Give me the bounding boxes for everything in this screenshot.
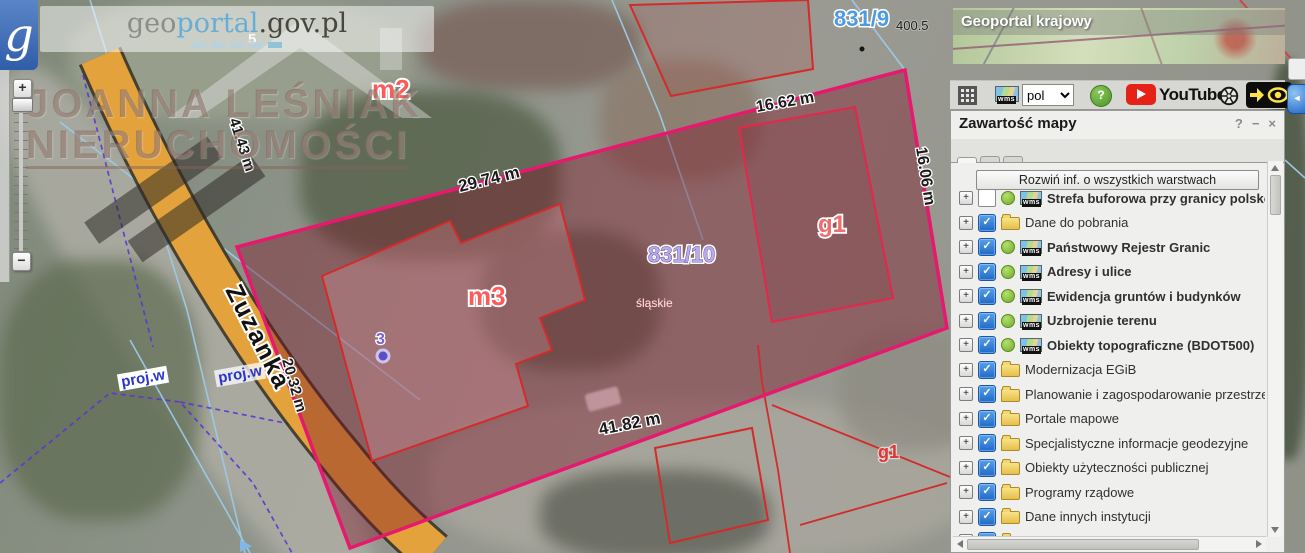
layer-checkbox[interactable] [978, 361, 996, 379]
menu-item[interactable] [249, 42, 263, 48]
site-header: geoportal.gov.pl [40, 6, 434, 52]
folder-icon [1001, 217, 1020, 230]
building-m2-outline [630, 0, 813, 96]
tab[interactable] [980, 156, 1000, 162]
building-label-g1-top: g1 [818, 211, 846, 238]
wms-icon: wms [1020, 314, 1042, 328]
layer-row[interactable]: + wms Uzbrojenie terenu [955, 309, 1265, 334]
layer-row[interactable]: + wms Dane do pobrania [955, 211, 1265, 236]
expand-layer-icon[interactable]: + [959, 314, 973, 328]
layer-label: Planowanie i zagospodarowanie przestrzen… [1025, 387, 1265, 402]
layer-checkbox[interactable] [978, 410, 996, 428]
map-contents-panel: Zawartość mapy ? − × Rozwiń inf. o wszys… [950, 110, 1285, 553]
wms-status-dot [1001, 191, 1015, 205]
expand-layer-icon[interactable]: + [959, 461, 973, 475]
layer-row[interactable]: + wms Ewidencja gruntów i budynków [955, 284, 1265, 309]
expand-layer-icon[interactable]: + [959, 289, 973, 303]
panel-help-button[interactable]: ? [1235, 116, 1243, 131]
grid-icon[interactable] [958, 86, 977, 105]
wms-status-dot [1001, 265, 1015, 279]
edge-button[interactable] [1288, 58, 1305, 80]
horizontal-scroll-thumb[interactable] [967, 539, 1199, 550]
layer-label: Państwowy Rejestr Granic [1047, 240, 1210, 255]
layer-checkbox[interactable] [978, 434, 996, 452]
layer-checkbox[interactable] [978, 385, 996, 403]
layer-label: Modernizacja EGiB [1025, 362, 1136, 377]
menu-item[interactable] [192, 42, 206, 48]
layer-list: + wms Strefa buforowa przy granicy polsk… [955, 186, 1265, 538]
menu-item[interactable] [211, 42, 225, 48]
panel-tabs [951, 139, 1284, 163]
scroll-right-icon[interactable] [1256, 540, 1262, 548]
wms-status-dot [1001, 314, 1015, 328]
layer-label: Obiekty użyteczności publicznej [1025, 460, 1209, 475]
layer-checkbox[interactable] [978, 189, 996, 207]
zoom-slider-handle[interactable] [12, 98, 33, 112]
menu-item[interactable] [230, 42, 244, 48]
expand-layer-icon[interactable]: + [959, 338, 973, 352]
layer-row[interactable]: + wms Adresy i ulice [955, 260, 1265, 285]
building-label-m2: m2 [372, 74, 410, 104]
expand-layer-icon[interactable]: + [959, 436, 973, 450]
layer-label: Strefa buforowa przy granicy polsko-biał… [1047, 191, 1265, 206]
layer-row[interactable]: + wms Obiekty użyteczności publicznej [955, 456, 1265, 481]
cadastral-line [1285, 160, 1305, 178]
zoom-in-button[interactable]: + [13, 79, 32, 98]
expand-layer-icon[interactable]: + [959, 412, 973, 426]
wms-icon: wms [1020, 289, 1042, 303]
zoom-slider-rail[interactable] [14, 113, 28, 251]
expand-layer-icon[interactable]: + [959, 363, 973, 377]
layer-label: Ewidencja gruntów i budynków [1047, 289, 1241, 304]
wms-status-dot [1001, 289, 1015, 303]
visibility-toggle-icon[interactable] [1246, 82, 1292, 108]
layer-label: Dane do pobrania [1025, 215, 1128, 230]
wms-status-dot [1001, 338, 1015, 352]
panel-title: Zawartość mapy ? − × [951, 111, 1284, 139]
layer-row[interactable]: + wms Planowanie i zagospodarowanie prze… [955, 382, 1265, 407]
folder-icon [1001, 413, 1020, 426]
scroll-down-icon[interactable] [1271, 527, 1279, 533]
panel-close-icon[interactable]: × [1268, 116, 1276, 131]
collapse-panel-button[interactable]: ◄ [1287, 84, 1305, 114]
expand-layer-icon[interactable]: + [959, 265, 973, 279]
overview-map[interactable]: Geoportal krajowy [953, 8, 1285, 64]
wms-status-dot [1001, 240, 1015, 254]
expand-layer-icon[interactable]: + [959, 485, 973, 499]
tab[interactable] [1003, 156, 1023, 162]
layer-label: Uzbrojenie terenu [1047, 313, 1157, 328]
layer-row[interactable]: + wms Obiekty topograficzne (BDOT500) [955, 333, 1265, 358]
youtube-play-icon [1126, 84, 1156, 105]
wms-icon: wms [1020, 265, 1042, 279]
spot-height-label: 400.5 [896, 18, 929, 33]
wms-icon: wms [1020, 338, 1042, 352]
building-label-g1-bottom: g1 [878, 442, 899, 462]
boundary-line [800, 483, 947, 525]
expand-layer-icon[interactable]: + [959, 387, 973, 401]
language-select[interactable]: pol [1022, 84, 1074, 106]
expand-layer-icon[interactable]: + [959, 240, 973, 254]
layer-checkbox[interactable] [978, 336, 996, 354]
layer-row[interactable]: + wms Strefa buforowa przy granicy polsk… [955, 186, 1265, 211]
region-label: śląskie [636, 296, 673, 310]
layer-label: Programy rządowe [1025, 485, 1134, 500]
layer-checkbox[interactable] [978, 312, 996, 330]
wms-icon: wms [1020, 191, 1042, 205]
left-panel-edge[interactable] [0, 62, 10, 282]
main-menu [40, 42, 434, 48]
layer-row[interactable]: + wms Portale mapowe [955, 407, 1265, 432]
layer-label: Obiekty topograficzne (BDOT500) [1047, 338, 1254, 353]
layer-label: Dane innych instytucji [1025, 509, 1151, 524]
layer-row[interactable]: + wms Programy rządowe [955, 480, 1265, 505]
overview-title: Geoportal krajowy [953, 10, 1285, 35]
tab[interactable] [957, 157, 977, 163]
measurement-label: 41.43 m [225, 116, 258, 174]
vertical-scrollbar[interactable] [1267, 161, 1283, 537]
layer-checkbox[interactable] [978, 263, 996, 281]
wms-icon[interactable]: wms [995, 86, 1019, 102]
building-outline [655, 428, 768, 543]
layer-row[interactable]: + wms Dane innych instytucji [955, 505, 1265, 530]
layer-row[interactable]: + wms Modernizacja EGiB [955, 358, 1265, 383]
scroll-left-icon[interactable] [957, 540, 963, 548]
layer-checkbox[interactable] [978, 287, 996, 305]
geoportal-app: m2 m3 g1 g1 400.5 831/9 831/10 831/10 śl… [0, 0, 1305, 553]
horizontal-scrollbar[interactable] [953, 536, 1266, 551]
layer-checkbox[interactable] [978, 508, 996, 526]
folder-icon [1001, 462, 1020, 475]
layer-checkbox[interactable] [978, 238, 996, 256]
boundary-line [772, 405, 950, 477]
layer-label: Portale mapowe [1025, 411, 1119, 426]
zoom-out-button[interactable]: − [12, 252, 31, 271]
building-label-m3: m3 [468, 281, 506, 311]
spot-height-point [860, 47, 865, 52]
wms-icon: wms [1020, 240, 1042, 254]
help-icon[interactable]: ? [1090, 85, 1112, 107]
layer-label: Specjalistyczne informacje geodezyjne [1025, 436, 1248, 451]
geoportal-logo[interactable]: g [0, 0, 38, 70]
wheel-icon[interactable] [1218, 85, 1240, 112]
utility-dashed-line [0, 393, 292, 553]
folder-icon [1001, 487, 1020, 500]
panel-minimize-button[interactable]: − [1252, 116, 1260, 131]
layer-row[interactable]: + wms Państwowy Rejestr Granic [955, 235, 1265, 260]
expand-layer-icon[interactable]: + [959, 510, 973, 524]
youtube-link[interactable]: YouTube [1126, 84, 1226, 105]
layer-checkbox[interactable] [978, 214, 996, 232]
layer-checkbox[interactable] [978, 459, 996, 477]
scroll-up-icon[interactable] [1271, 165, 1279, 171]
address-number-label: 3 [376, 331, 385, 348]
window-buttons: ? − × [1235, 116, 1276, 131]
layer-row[interactable]: + wms Specjalistyczne informacje geodezy… [955, 431, 1265, 456]
menu-item[interactable] [268, 42, 282, 48]
vertical-scroll-thumb[interactable] [1270, 175, 1281, 215]
parcel-label-831-9: 831/9 [834, 6, 889, 31]
layer-label: Adresy i ulice [1047, 264, 1132, 279]
folder-icon [1001, 364, 1020, 377]
parcel-label-831-10: 831/10 [648, 242, 715, 267]
expand-layer-icon[interactable]: + [959, 191, 973, 205]
site-title: geoportal.gov.pl [40, 8, 434, 39]
folder-icon [1001, 511, 1020, 524]
expand-layer-icon[interactable]: + [959, 216, 973, 230]
address-point-dot[interactable] [379, 352, 388, 361]
layer-checkbox[interactable] [978, 483, 996, 501]
folder-icon [1001, 438, 1020, 451]
right-toolbar: wms pol ? YouTube [950, 80, 1285, 109]
folder-icon [1001, 389, 1020, 402]
line-arrowhead [240, 540, 252, 552]
